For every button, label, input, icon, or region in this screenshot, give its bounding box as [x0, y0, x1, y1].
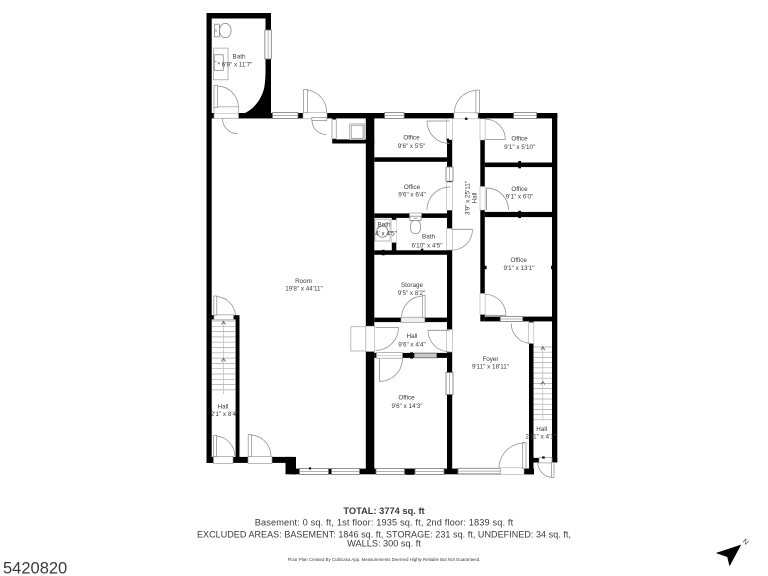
svg-text:Office: Office	[511, 257, 528, 264]
svg-text:4' x 4'5": 4' x 4'5"	[375, 231, 397, 238]
svg-text:9'1" x 13'1": 9'1" x 13'1"	[503, 265, 534, 272]
svg-text:Hall: Hall	[536, 426, 547, 433]
svg-text:Hall: Hall	[471, 193, 478, 204]
svg-text:Bath: Bath	[233, 54, 246, 61]
svg-text:9'1" x 5'10": 9'1" x 5'10"	[504, 144, 535, 151]
svg-text:* 6'9" x 11'7": * 6'9" x 11'7"	[218, 62, 253, 69]
svg-text:Office: Office	[398, 395, 415, 402]
svg-text:2'11" x 4'1": 2'11" x 4'1"	[525, 434, 556, 441]
svg-text:9'6" x 6'4": 9'6" x 6'4"	[398, 192, 426, 199]
svg-text:9'6" x 4'4": 9'6" x 4'4"	[398, 342, 426, 349]
svg-text:Bath: Bath	[378, 222, 391, 229]
svg-text:Hall: Hall	[218, 404, 229, 411]
svg-text:Office: Office	[511, 186, 528, 193]
svg-text:9'11" x 18'11": 9'11" x 18'11"	[472, 364, 509, 371]
svg-text:6'10" x 4'5": 6'10" x 4'5"	[411, 243, 442, 250]
svg-text:TOTAL: 3774 sq. ft: TOTAL: 3774 sq. ft	[343, 506, 424, 516]
svg-text:2'1" x 8'4": 2'1" x 8'4"	[211, 411, 239, 418]
svg-text:Bath: Bath	[422, 234, 435, 241]
svg-text:3'9" x 25'11": 3'9" x 25'11"	[464, 181, 471, 215]
svg-text:Floor Plan Created By Cubicasa: Floor Plan Created By Cubicasa App. Meas…	[288, 557, 481, 562]
svg-text:Foyer: Foyer	[482, 356, 498, 363]
svg-text:Basement: 0 sq. ft, 1st floor:: Basement: 0 sq. ft, 1st floor: 1935 sq. …	[255, 518, 514, 528]
svg-text:9'6" x 5'5": 9'6" x 5'5"	[398, 143, 426, 150]
svg-text:Office: Office	[511, 136, 528, 143]
svg-text:Office: Office	[403, 135, 420, 142]
svg-text:9'5" x 8'2": 9'5" x 8'2"	[398, 290, 426, 297]
svg-text:19'8" x 44'11": 19'8" x 44'11"	[285, 286, 323, 293]
svg-text:Room: Room	[295, 278, 312, 285]
svg-text:WALLS: 300 sq. ft: WALLS: 300 sq. ft	[347, 539, 421, 549]
svg-text:9'6" x 14'3": 9'6" x 14'3"	[391, 403, 422, 410]
svg-text:Storage: Storage	[401, 282, 424, 289]
svg-text:Hall: Hall	[407, 333, 418, 340]
svg-text:Office: Office	[404, 184, 421, 191]
svg-text:5420820: 5420820	[3, 560, 67, 576]
svg-text:9'1" x 6'0": 9'1" x 6'0"	[506, 194, 534, 201]
